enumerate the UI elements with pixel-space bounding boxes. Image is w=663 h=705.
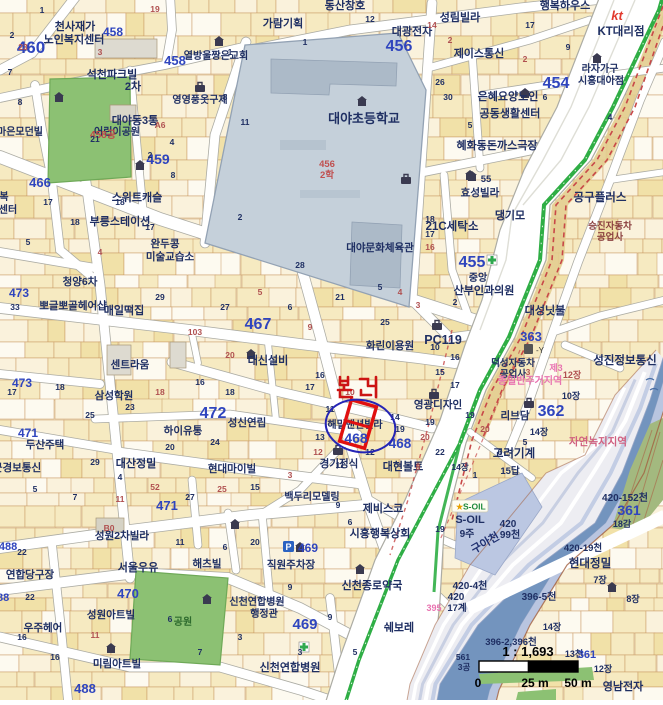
svg-text:제3: 제3 [549, 362, 562, 373]
svg-text:복: 복 [0, 191, 9, 203]
svg-text:5: 5 [523, 437, 528, 447]
svg-text:6: 6 [168, 614, 173, 624]
svg-text:노인복지센터: 노인복지센터 [44, 32, 105, 46]
svg-text:52: 52 [150, 482, 160, 492]
svg-text:15: 15 [435, 367, 445, 377]
svg-text:백두리모델링: 백두리모델링 [284, 490, 339, 503]
svg-text:공업사: 공업사 [597, 231, 623, 243]
svg-text:17: 17 [7, 387, 17, 397]
svg-text:21: 21 [90, 134, 100, 144]
svg-text:471: 471 [156, 498, 178, 513]
svg-text:가람기획: 가람기획 [263, 16, 303, 30]
svg-text:16: 16 [450, 352, 460, 362]
svg-text:25: 25 [217, 484, 227, 494]
svg-text:10장: 10장 [562, 390, 581, 401]
svg-text:4: 4 [398, 287, 403, 297]
svg-text:6: 6 [288, 302, 293, 312]
svg-text:리브담: 리브담 [501, 409, 530, 422]
svg-text:7: 7 [8, 67, 13, 77]
svg-text:S-OIL: S-OIL [463, 502, 486, 512]
svg-text:영남전자: 영남전자 [603, 679, 644, 693]
svg-text:21: 21 [335, 292, 345, 302]
svg-text:2: 2 [523, 54, 528, 64]
svg-text:23: 23 [125, 402, 135, 412]
svg-text:삼성학원: 삼성학원 [95, 389, 134, 402]
svg-text:3: 3 [238, 632, 243, 642]
svg-text:댕기모: 댕기모 [495, 208, 525, 222]
svg-text:456: 456 [386, 38, 413, 55]
svg-text:33: 33 [10, 302, 20, 312]
svg-text:5: 5 [258, 287, 263, 297]
svg-text:420: 420 [500, 519, 517, 530]
svg-text:5: 5 [378, 282, 383, 292]
svg-text:19: 19 [465, 410, 475, 420]
svg-text:제이스통신: 제이스통신 [454, 46, 505, 60]
svg-text:공동생활센터: 공동생활센터 [480, 106, 541, 120]
svg-text:19: 19 [395, 424, 405, 434]
svg-text:9주: 9주 [460, 528, 475, 540]
svg-text:420-19천: 420-19천 [564, 543, 602, 554]
svg-text:S-OIL: S-OIL [455, 514, 485, 526]
svg-text:8: 8 [416, 462, 421, 472]
svg-text:대성닛불: 대성닛불 [525, 303, 565, 317]
svg-text:4: 4 [170, 137, 175, 147]
svg-text:458: 458 [164, 53, 186, 68]
svg-text:공원: 공원 [174, 615, 192, 628]
svg-text:7: 7 [73, 492, 78, 502]
svg-text:해츠빌: 해츠빌 [193, 557, 222, 570]
svg-text:25 m: 25 m [521, 676, 548, 690]
svg-text:468: 468 [344, 430, 368, 446]
svg-text:22: 22 [25, 592, 35, 602]
svg-text:14장: 14장 [530, 426, 549, 437]
svg-text:5: 5 [26, 237, 31, 247]
svg-text:열방울짱은교회: 열방울짱은교회 [184, 49, 248, 62]
svg-text:연합당구장: 연합당구장 [6, 568, 55, 581]
svg-text:2: 2 [10, 30, 15, 40]
svg-text:대야문화체육관: 대야문화체육관 [346, 241, 414, 254]
svg-text:420: 420 [448, 592, 465, 603]
svg-text:3: 3 [416, 300, 421, 310]
svg-text:13: 13 [315, 432, 325, 442]
svg-text:행정관: 행정관 [250, 607, 278, 620]
svg-text:시흥행복상회: 시흥행복상회 [350, 526, 411, 540]
svg-text:488: 488 [0, 592, 9, 604]
svg-text:행복하우스: 행복하우스 [540, 0, 591, 12]
svg-text:20: 20 [165, 442, 175, 452]
svg-text:30: 30 [443, 92, 453, 102]
svg-text:22: 22 [435, 447, 445, 457]
svg-text:2: 2 [453, 297, 458, 307]
svg-text:공구플러스: 공구플러스 [574, 190, 627, 204]
svg-text:-Y: -Y [536, 346, 545, 355]
svg-text:12장: 12장 [594, 663, 613, 674]
svg-text:14: 14 [427, 20, 437, 30]
svg-text:8: 8 [223, 92, 228, 102]
svg-text:8장: 8장 [626, 593, 640, 604]
svg-text:2: 2 [148, 150, 153, 160]
svg-text:19: 19 [425, 417, 435, 427]
svg-text:10: 10 [430, 342, 440, 352]
svg-text:효성빌라: 효성빌라 [461, 186, 500, 199]
svg-text:현대정밀: 현대정밀 [569, 556, 611, 570]
svg-text:성진정보통신: 성진정보통신 [593, 353, 656, 367]
svg-text:472: 472 [200, 405, 227, 422]
svg-text:50 m: 50 m [564, 676, 591, 690]
svg-text:470: 470 [117, 586, 139, 601]
svg-text:29: 29 [155, 292, 165, 302]
svg-text:6: 6 [543, 92, 548, 102]
svg-text:대야동3통: 대야동3통 [112, 113, 159, 127]
svg-text:12: 12 [365, 14, 375, 24]
svg-text:467: 467 [245, 316, 272, 333]
svg-text:성림빌라: 성림빌라 [440, 10, 481, 24]
svg-text:3공: 3공 [458, 662, 471, 672]
svg-text:KT대리점: KT대리점 [597, 24, 644, 38]
svg-text:17: 17 [145, 222, 155, 232]
svg-text:18: 18 [225, 387, 235, 397]
svg-text:18: 18 [55, 382, 65, 392]
svg-text:4: 4 [98, 247, 103, 257]
svg-text:신천연합병원: 신천연합병원 [229, 595, 284, 608]
svg-text:대야초등학교: 대야초등학교 [328, 111, 400, 126]
svg-text:3: 3 [298, 647, 303, 657]
svg-text:7장: 7장 [593, 574, 607, 585]
svg-text:청양6차: 청양6차 [63, 275, 98, 288]
svg-text:승진자동차: 승진자동차 [588, 220, 632, 232]
svg-text:혜화동돈까스극장: 혜화동돈까스극장 [457, 138, 538, 152]
svg-text:25: 25 [85, 410, 95, 420]
svg-text:16: 16 [425, 242, 435, 252]
svg-text:28: 28 [295, 260, 305, 270]
svg-text:17: 17 [450, 380, 460, 390]
svg-text:1: 1 [40, 5, 45, 15]
svg-text:대산정밀: 대산정밀 [116, 456, 156, 470]
svg-text:뽀글뽀골헤어샵: 뽀글뽀골헤어샵 [39, 299, 107, 312]
svg-text:영영풍옷구제: 영영풍옷구제 [172, 93, 227, 106]
svg-text:2: 2 [238, 212, 243, 222]
svg-text:6: 6 [498, 447, 503, 457]
svg-text:군경보통신: 군경보통신 [0, 461, 41, 474]
svg-text:15답: 15답 [500, 465, 520, 477]
svg-text:17: 17 [525, 20, 535, 30]
svg-text:3: 3 [98, 47, 103, 57]
svg-text:25: 25 [380, 317, 390, 327]
svg-text:18감: 18감 [613, 518, 632, 529]
svg-text:직원주차장: 직원주차장 [267, 558, 316, 571]
svg-text:18: 18 [70, 217, 80, 227]
svg-text:29: 29 [90, 457, 100, 467]
svg-text:17: 17 [43, 197, 53, 207]
svg-text:석천파크빌: 석천파크빌 [87, 67, 138, 81]
svg-text:11: 11 [326, 404, 335, 414]
svg-text:성원아트빌: 성원아트빌 [87, 608, 135, 621]
svg-text:24: 24 [210, 437, 220, 447]
svg-text:11: 11 [176, 537, 185, 547]
svg-text:99천: 99천 [500, 528, 520, 541]
svg-text:쉐보레: 쉐보레 [384, 620, 414, 634]
svg-text:488: 488 [74, 681, 96, 696]
svg-text:466: 466 [29, 175, 51, 190]
svg-text:456: 456 [319, 159, 335, 170]
svg-text:2차: 2차 [125, 79, 142, 93]
svg-text:신천연합병원: 신천연합병원 [260, 660, 321, 674]
svg-text:18: 18 [155, 387, 165, 397]
svg-text:14장: 14장 [451, 462, 468, 472]
svg-text:19: 19 [150, 4, 160, 14]
svg-text:B0: B0 [104, 523, 115, 533]
svg-text:361: 361 [617, 502, 641, 518]
svg-text:361: 361 [578, 649, 596, 661]
svg-text:5: 5 [33, 484, 38, 494]
svg-text:11: 11 [91, 630, 100, 640]
svg-text:455: 455 [459, 254, 486, 271]
svg-text:12장: 12장 [563, 369, 582, 380]
svg-text:마은모던빌: 마은모던빌 [0, 125, 43, 138]
svg-text:9: 9 [308, 322, 313, 332]
svg-text:매일떡집: 매일떡집 [104, 303, 144, 317]
svg-text:17: 17 [305, 382, 315, 392]
svg-text:미림아트빌: 미림아트빌 [93, 657, 141, 670]
svg-text:중앙: 중앙 [469, 272, 488, 284]
svg-text:영광디자인: 영광디자인 [414, 398, 462, 411]
svg-text:9: 9 [566, 42, 571, 52]
svg-text:1 : 1,693: 1 : 1,693 [502, 644, 553, 659]
svg-text:11: 11 [241, 117, 250, 127]
svg-text:471: 471 [18, 426, 38, 440]
svg-text:16: 16 [195, 377, 205, 387]
svg-text:18: 18 [425, 214, 435, 224]
svg-text:센트라움: 센트라움 [111, 358, 150, 371]
svg-text:12: 12 [313, 447, 323, 457]
svg-text:동산창호: 동산창호 [325, 0, 365, 12]
svg-text:11: 11 [116, 494, 125, 504]
svg-text:5: 5 [468, 120, 473, 130]
svg-text:23: 23 [18, 42, 28, 52]
svg-text:20: 20 [250, 537, 260, 547]
svg-text:2학: 2학 [320, 169, 334, 181]
svg-text:11: 11 [336, 460, 345, 470]
svg-text:16: 16 [17, 632, 27, 642]
svg-text:362: 362 [538, 403, 565, 420]
svg-text:화린이용원: 화린이용원 [366, 339, 414, 352]
svg-text:부릉스테이션: 부릉스테이션 [90, 214, 151, 228]
svg-text:0: 0 [475, 676, 482, 690]
svg-text:2: 2 [448, 35, 453, 45]
svg-text:제비스코: 제비스코 [363, 501, 403, 515]
svg-text:kt: kt [611, 8, 623, 23]
svg-text:103: 103 [188, 327, 202, 337]
svg-text:17: 17 [425, 229, 435, 239]
svg-text:라자가구: 라자가구 [582, 62, 619, 75]
svg-text:488: 488 [0, 541, 17, 553]
svg-text:성신연립: 성신연립 [228, 416, 267, 429]
svg-text:26: 26 [435, 77, 445, 87]
svg-text:3: 3 [526, 367, 531, 377]
svg-text:산부인과의원: 산부인과의원 [454, 283, 515, 297]
svg-text:20: 20 [225, 350, 235, 360]
svg-text:서울우유: 서울우유 [118, 560, 158, 574]
svg-text:현대마이빌: 현대마이빌 [208, 462, 256, 475]
svg-text:9: 9 [328, 612, 333, 622]
svg-text:27: 27 [220, 302, 230, 312]
svg-text:17계: 17계 [447, 602, 466, 614]
svg-text:3: 3 [288, 470, 293, 480]
svg-text:센터: 센터 [0, 203, 17, 216]
svg-text:신천종로약국: 신천종로약국 [342, 578, 403, 592]
svg-text:458: 458 [103, 25, 123, 39]
svg-text:1: 1 [303, 37, 308, 47]
svg-text:14장: 14장 [543, 621, 562, 632]
svg-text:469: 469 [292, 616, 317, 633]
svg-text:8: 8 [171, 170, 176, 180]
svg-text:10: 10 [345, 387, 355, 397]
svg-text:454: 454 [543, 75, 570, 92]
svg-text:6: 6 [348, 517, 353, 527]
svg-text:8: 8 [18, 97, 23, 107]
svg-text:1: 1 [228, 47, 233, 57]
svg-text:9: 9 [336, 500, 341, 510]
svg-text:55: 55 [481, 174, 492, 185]
svg-text:7: 7 [198, 647, 203, 657]
svg-text:19: 19 [435, 524, 445, 534]
svg-text:미술교습소: 미술교습소 [146, 250, 195, 263]
svg-text:20: 20 [480, 424, 490, 434]
svg-text:16: 16 [50, 652, 60, 662]
svg-text:22: 22 [17, 547, 27, 557]
svg-text:시흥대아점: 시흥대아점 [578, 74, 624, 87]
svg-text:473: 473 [9, 286, 29, 300]
svg-text:대신설비: 대신설비 [248, 353, 288, 367]
svg-text:4: 4 [118, 472, 123, 482]
svg-text:16: 16 [315, 370, 325, 380]
svg-text:4: 4 [608, 112, 613, 122]
svg-text:자연녹지지역: 자연녹지지역 [569, 435, 627, 448]
svg-text:5: 5 [353, 647, 358, 657]
svg-text:420-4천: 420-4천 [453, 579, 488, 592]
svg-text:9: 9 [288, 582, 293, 592]
svg-text:완두콩: 완두콩 [151, 237, 180, 250]
svg-text:천사재가: 천사재가 [55, 19, 95, 33]
svg-text:은혜요양노인: 은혜요양노인 [478, 89, 539, 103]
svg-text:1: 1 [473, 470, 478, 480]
svg-text:396-5천: 396-5천 [522, 590, 557, 603]
svg-text:15: 15 [250, 482, 260, 492]
svg-text:P: P [285, 542, 291, 552]
svg-text:18: 18 [115, 197, 125, 207]
svg-text:20: 20 [420, 432, 430, 442]
svg-text:우주헤어: 우주헤어 [24, 621, 63, 634]
svg-text:A6: A6 [155, 120, 166, 130]
svg-text:363: 363 [520, 329, 542, 344]
svg-text:395: 395 [426, 603, 441, 613]
svg-text:27: 27 [185, 492, 195, 502]
svg-text:561: 561 [456, 652, 470, 662]
svg-text:6: 6 [223, 542, 228, 552]
svg-text:469: 469 [298, 541, 318, 555]
svg-text:하이유통: 하이유통 [164, 424, 203, 437]
